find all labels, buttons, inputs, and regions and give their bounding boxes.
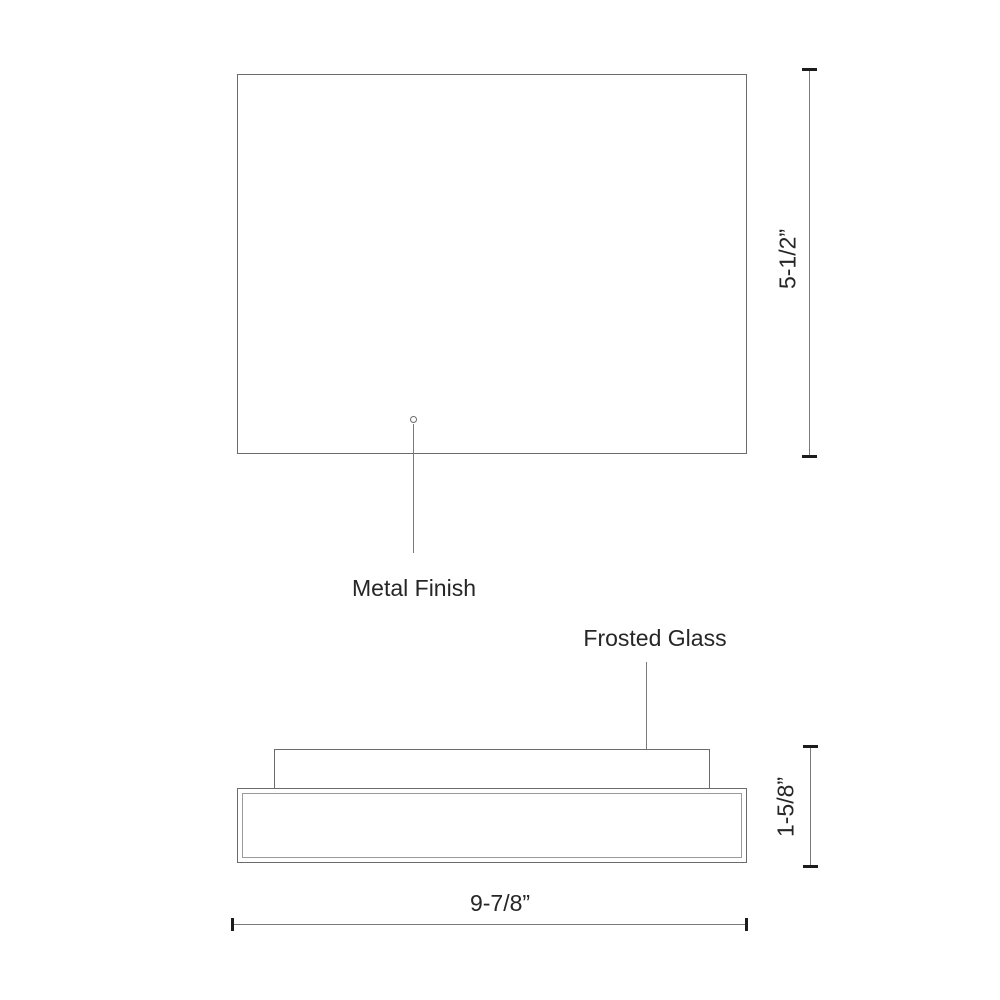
metal-finish-leader-line xyxy=(413,424,414,553)
metal-finish-leader-dot xyxy=(410,416,417,423)
metal-finish-label: Metal Finish xyxy=(352,576,476,601)
width-dimension-line xyxy=(233,924,747,925)
height-dimension-top-tick xyxy=(802,68,817,71)
side-view-mounting-plate xyxy=(274,749,710,789)
width-dimension-right-tick xyxy=(745,918,748,931)
frosted-glass-label: Frosted Glass xyxy=(583,626,726,651)
depth-dimension-bottom-tick xyxy=(803,865,818,868)
height-dimension-label: 5-1/2” xyxy=(775,229,800,289)
width-dimension-left-tick xyxy=(231,918,234,931)
height-dimension-bottom-tick xyxy=(802,455,817,458)
depth-dimension-line xyxy=(810,747,811,868)
width-dimension-label: 9-7/8” xyxy=(470,891,530,916)
depth-dimension-top-tick xyxy=(803,745,818,748)
dimension-drawing: 5-1/2” Metal Finish Frosted Glass 1-5/8”… xyxy=(0,0,1000,1000)
depth-dimension-label: 1-5/8” xyxy=(773,777,798,837)
height-dimension-line xyxy=(809,69,810,457)
side-view-glass-inset-line xyxy=(242,793,742,858)
top-view-outline xyxy=(237,74,747,454)
